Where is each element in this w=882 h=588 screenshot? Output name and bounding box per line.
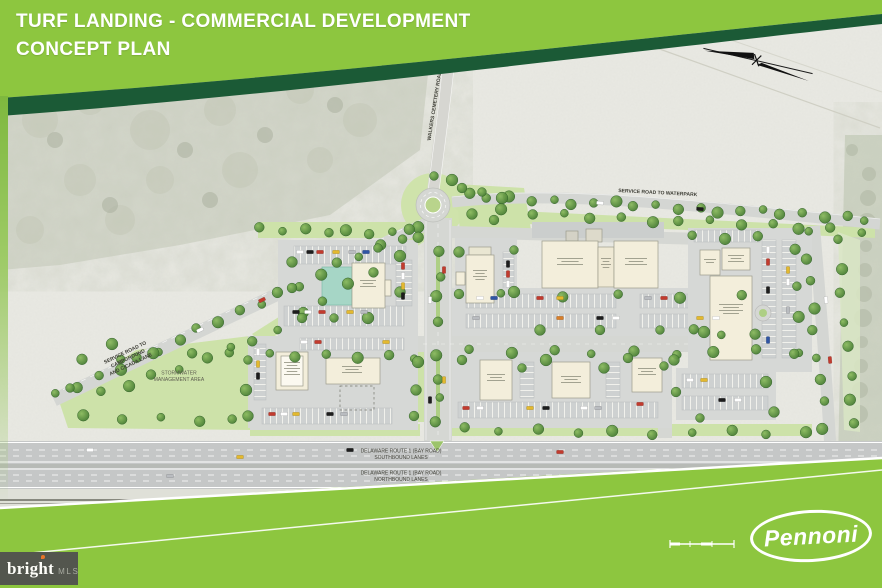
brightmls-flame-icon	[41, 555, 45, 559]
building-south-pad-3	[632, 358, 662, 392]
graphic-scale	[668, 536, 738, 550]
brightmls-brand: bright	[7, 559, 54, 579]
footer-banner	[0, 430, 882, 588]
building-nw-retail	[352, 263, 385, 308]
concept-plan-page: SERVICE ROAD TO CAMPGROUND AND CICADA LA…	[0, 0, 882, 588]
brightmls-suffix: MLS	[58, 567, 79, 576]
pennoni-logo-text: Pennoni	[763, 520, 859, 552]
page-title: TURF LANDING - COMMERCIAL DEVELOPMENT CO…	[16, 8, 471, 63]
building-ne-retail	[722, 248, 750, 270]
loading-dock	[586, 229, 602, 242]
building-sw-retail	[326, 358, 380, 384]
kiosk	[456, 272, 465, 285]
drive-thru-canopy	[469, 247, 491, 255]
brightmls-watermark: bright MLS	[0, 552, 78, 585]
building-south-pad-2	[552, 362, 590, 398]
label-stormwater-area: STORMWATER MANAGEMENT AREA	[134, 370, 224, 383]
roundabout	[416, 188, 450, 222]
